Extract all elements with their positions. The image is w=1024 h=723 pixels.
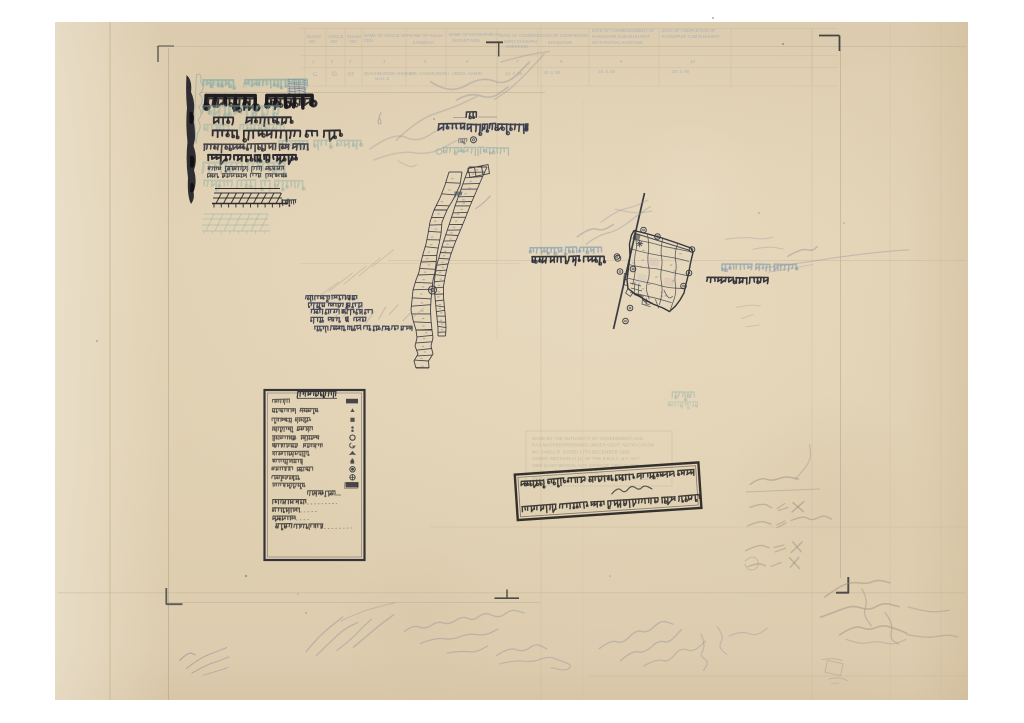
svg-text:ABDUL HAMID: ABDUL HAMID (452, 71, 482, 76)
svg-text:NO: NO (309, 39, 316, 44)
svg-text:CER: CER (364, 38, 373, 43)
svg-text:SISTANT MOH: SISTANT MOH (452, 38, 480, 43)
svg-text:KHANAPURI: KHANAPURI (548, 40, 572, 45)
svg-text:8: 8 (560, 59, 563, 64)
svg-text:DATE OF COMPLETION OF: DATE OF COMPLETION OF (662, 28, 716, 33)
svg-text:DATE OF COMMENCEMENT OF: DATE OF COMMENCEMENT OF (592, 28, 655, 33)
svg-text:9: 9 (620, 59, 623, 64)
svg-text:10: 10 (690, 59, 696, 64)
svg-text:4: 4 (383, 59, 386, 64)
svg-text:KHANAPURI CUM BUJHARAT: KHANAPURI CUM BUJHARAT (662, 34, 721, 39)
svg-text:UNDER SECTION 17 (1) OF THE: UNDER SECTION 17 (1) OF THE E.B.S.A. & T… (532, 456, 640, 461)
svg-text:7: 7 (516, 59, 519, 64)
svg-text:2: 2 (331, 59, 334, 64)
svg-text:WITH PARTIAL KHATIANS: WITH PARTIAL KHATIANS (592, 40, 643, 45)
svg-text:MR. HASIMUDDIN /: MR. HASIMUDDIN / (410, 71, 450, 76)
svg-text:KHANAPURI CUM BUJHARAT: KHANAPURI CUM BUJHARAT (592, 34, 651, 39)
svg-text:16. 4. 68: 16. 4. 68 (598, 69, 616, 74)
svg-text:MADE BY THE AUTHORITY OF GOVER: MADE BY THE AUTHORITY OF GOVERNMENT AND (532, 436, 644, 441)
svg-text:KARMCHA: KARMCHA (413, 40, 434, 45)
svg-text:MOH. B: MOH. B (375, 76, 390, 81)
svg-text:NO: NO (331, 39, 338, 44)
svg-text:NAME OF HALKA: NAME OF HALKA (409, 33, 443, 38)
svg-text:NO. 1466-L.R. DATED 17TH DECEM: NO. 1466-L.R. DATED 17TH DECEMBER 1958 (532, 449, 630, 454)
svg-text:6: 6 (466, 59, 469, 64)
svg-text:20. 4. 68: 20. 4. 68 (672, 69, 690, 74)
svg-text:DATE OF COMMENC: DATE OF COMMENC (500, 33, 541, 38)
svg-text:C: C (313, 72, 318, 78)
svg-text:NO: NO (350, 39, 357, 44)
svg-text:18. 4. 68: 18. 4. 68 (543, 70, 561, 75)
svg-text:NAME OF KHANAPURI AS: NAME OF KHANAPURI AS (449, 32, 500, 37)
svg-text:CHECKING: CHECKING (506, 44, 528, 49)
svg-text:5: 5 (424, 59, 427, 64)
svg-text:1: 1 (312, 59, 315, 64)
svg-text:2: 2 (349, 59, 352, 64)
svg-text:G: G (332, 71, 337, 78)
svg-text:67: 67 (348, 72, 354, 78)
svg-text:DATE OF COMPARISON: DATE OF COMPARISON (541, 33, 588, 38)
svg-text:HAS MAPPED/PREPARED UNDER GOVT: HAS MAPPED/PREPARED UNDER GOVT. NOTIFICA… (532, 443, 654, 448)
